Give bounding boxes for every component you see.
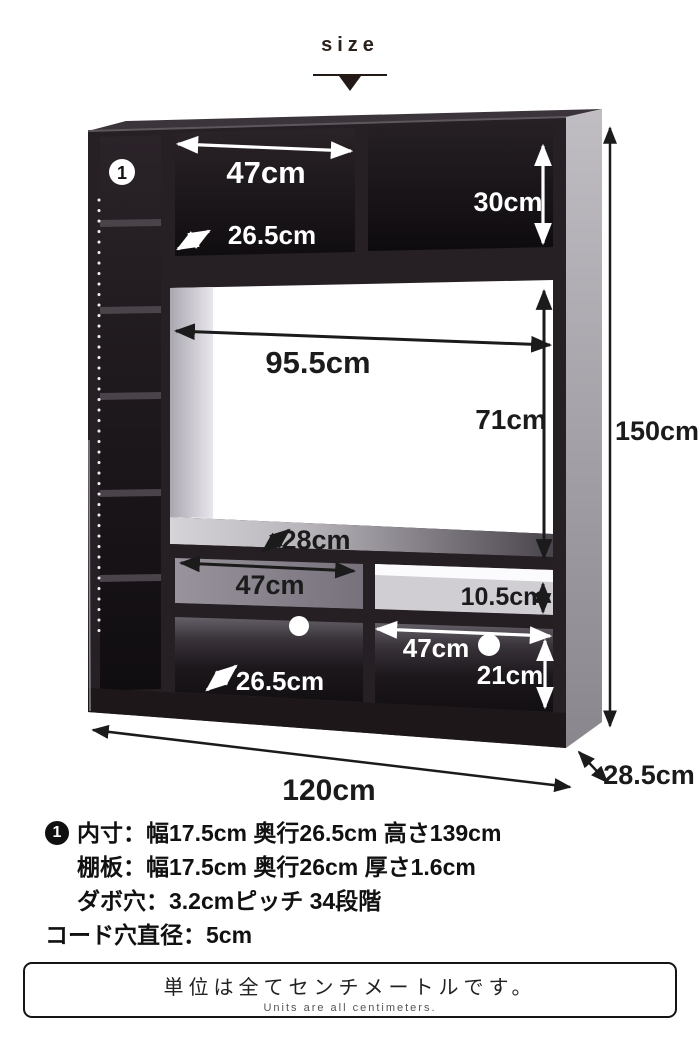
note-bullet-1-icon: 1 (45, 821, 69, 845)
units-note-en: Units are all centimeters. (25, 1002, 675, 1014)
cord-hole-left (289, 616, 309, 636)
units-note-box: 単位は全てセンチメートルです。 Units are all centimeter… (23, 962, 677, 1018)
left-column-interior (100, 135, 161, 691)
svg-text:47cm: 47cm (235, 570, 304, 600)
spec-notes: 1内寸：幅17.5cm 奥行26.5cm 高さ139cm 棚板：幅17.5cm … (45, 816, 665, 952)
dim-overall-height: 150cm (610, 128, 699, 726)
svg-text:26.5cm: 26.5cm (228, 220, 316, 250)
svg-text:120cm: 120cm (282, 774, 375, 807)
note-line-4: コード穴直径：5cm (45, 918, 665, 952)
size-diagram-page: size (0, 0, 700, 1040)
svg-text:28cm: 28cm (281, 525, 350, 555)
svg-text:150cm: 150cm (615, 416, 699, 446)
svg-text:10.5cm: 10.5cm (461, 583, 546, 611)
note-line-2-text: 棚板：幅17.5cm 奥行26cm 厚さ1.6cm (77, 854, 476, 880)
cabinet-side-panel (566, 109, 602, 748)
marker-1: 1 (109, 159, 135, 185)
note-line-1: 1内寸：幅17.5cm 奥行26.5cm 高さ139cm (45, 816, 665, 850)
svg-text:21cm: 21cm (477, 660, 544, 690)
dim-middle-row-height: 10.5cm (461, 583, 546, 612)
note-line-3-text: ダボ穴：3.2cmピッチ 34段階 (77, 888, 381, 914)
note-line-1-text: 内寸：幅17.5cm 奥行26.5cm 高さ139cm (77, 820, 501, 846)
cord-hole-right (478, 634, 500, 656)
svg-text:30cm: 30cm (473, 187, 542, 217)
units-note-jp: 単位は全てセンチメートルです。 (25, 971, 675, 1000)
svg-text:71cm: 71cm (475, 404, 547, 435)
note-line-2: 棚板：幅17.5cm 奥行26cm 厚さ1.6cm (77, 850, 665, 884)
svg-text:95.5cm: 95.5cm (265, 345, 370, 380)
svg-text:47cm: 47cm (403, 633, 470, 663)
svg-text:47cm: 47cm (226, 155, 305, 190)
top-right-compartment (368, 121, 553, 251)
svg-text:26.5cm: 26.5cm (236, 666, 324, 696)
note-line-3: ダボ穴：3.2cmピッチ 34段階 (77, 884, 665, 918)
note-line-4-text: コード穴直径：5cm (45, 922, 252, 948)
svg-text:28.5cm: 28.5cm (603, 760, 695, 790)
dim-overall-depth: 28.5cm (579, 752, 695, 790)
svg-text:1: 1 (117, 163, 127, 183)
